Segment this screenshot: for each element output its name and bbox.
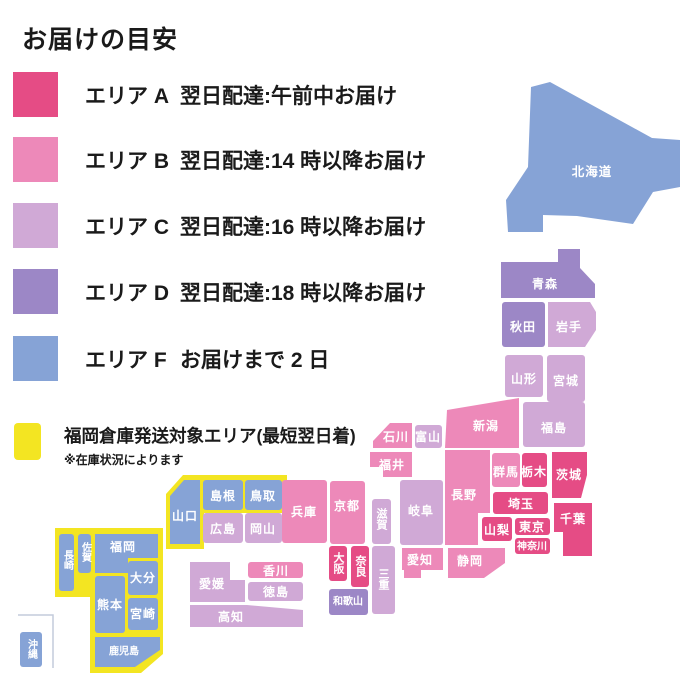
prefecture-label-ehime: 愛媛 [199, 576, 225, 591]
prefecture-label-wakayama: 和歌山 [332, 595, 363, 608]
prefecture-label-fukushima: 福島 [540, 420, 567, 435]
prefecture-label-tokyo: 東京 [519, 519, 545, 534]
prefecture-label-kagoshima: 鹿児島 [109, 645, 139, 658]
prefecture-label-fukuoka: 福岡 [109, 539, 136, 554]
prefecture-label-fukui: 福井 [378, 457, 405, 472]
prefecture-label-chiba: 千葉 [560, 511, 586, 526]
prefecture-label-gifu: 岐阜 [408, 503, 434, 518]
prefecture-label-yamanashi: 山梨 [484, 522, 510, 537]
prefecture-label-kochi: 高知 [218, 609, 244, 624]
prefecture-label-ishikawa: 石川 [382, 430, 409, 444]
prefecture-label-yamaguchi: 山口 [172, 508, 198, 523]
prefecture-label-hokkaido: 北海道 [572, 164, 613, 179]
prefecture-label-tottori: 鳥取 [250, 488, 276, 503]
prefecture-chiba [554, 503, 592, 556]
prefecture-label-kagawa: 香川 [262, 563, 289, 578]
prefecture-label-mie: 三重 [377, 568, 390, 590]
prefecture-label-hyogo: 兵庫 [291, 504, 317, 519]
prefecture-label-kyoto: 京都 [334, 498, 360, 513]
prefecture-label-okinawa: 沖縄 [26, 638, 38, 660]
prefecture-label-osaka: 大阪 [332, 551, 345, 575]
prefecture-label-shiga: 滋賀 [375, 507, 389, 531]
prefecture-label-kumamoto: 熊本 [97, 597, 123, 612]
prefecture-label-shimane: 島根 [210, 488, 236, 503]
prefecture-label-nara: 奈良 [354, 554, 368, 578]
prefecture-label-miyazaki: 宮崎 [130, 606, 156, 621]
prefecture-label-kanagawa: 神奈川 [517, 540, 547, 553]
prefecture-label-nagasaki: 長崎 [62, 550, 74, 571]
prefecture-label-niigata: 新潟 [473, 418, 499, 433]
prefecture-label-nagano: 長野 [451, 487, 477, 502]
prefecture-label-aichi: 愛知 [407, 552, 433, 567]
prefecture-label-iwate: 岩手 [555, 319, 582, 334]
delivery-estimate-graphic: お届けの目安 エリア A 翌日配達:午前中お届け エリア B 翌日配達:14 時… [0, 0, 700, 700]
prefecture-label-oita: 大分 [130, 570, 156, 585]
prefecture-label-toyama: 富山 [415, 429, 441, 444]
prefecture-label-hiroshima: 広島 [210, 521, 236, 536]
prefecture-label-saitama: 埼玉 [508, 496, 534, 511]
prefecture-hokkaido [506, 82, 680, 232]
prefecture-label-shizuoka: 静岡 [457, 553, 483, 568]
japan-map: 北海道 青森 秋田 岩手 山形 宮城 福島 新潟 群馬 栃木 茨城 埼玉 千葉 … [0, 0, 700, 700]
prefecture-kochi [190, 605, 303, 627]
prefecture-label-miyagi: 宮城 [553, 373, 579, 388]
prefecture-label-gunma: 群馬 [492, 464, 519, 479]
prefecture-label-yamagata: 山形 [511, 371, 537, 386]
prefecture-label-aomori: 青森 [532, 276, 558, 291]
prefecture-label-ibaraki: 茨城 [556, 467, 582, 482]
prefecture-label-tokushima: 徳島 [262, 584, 289, 599]
prefecture-label-akita: 秋田 [510, 319, 536, 334]
prefecture-label-tochigi: 栃木 [521, 464, 547, 479]
prefecture-label-okayama: 岡山 [250, 521, 276, 536]
